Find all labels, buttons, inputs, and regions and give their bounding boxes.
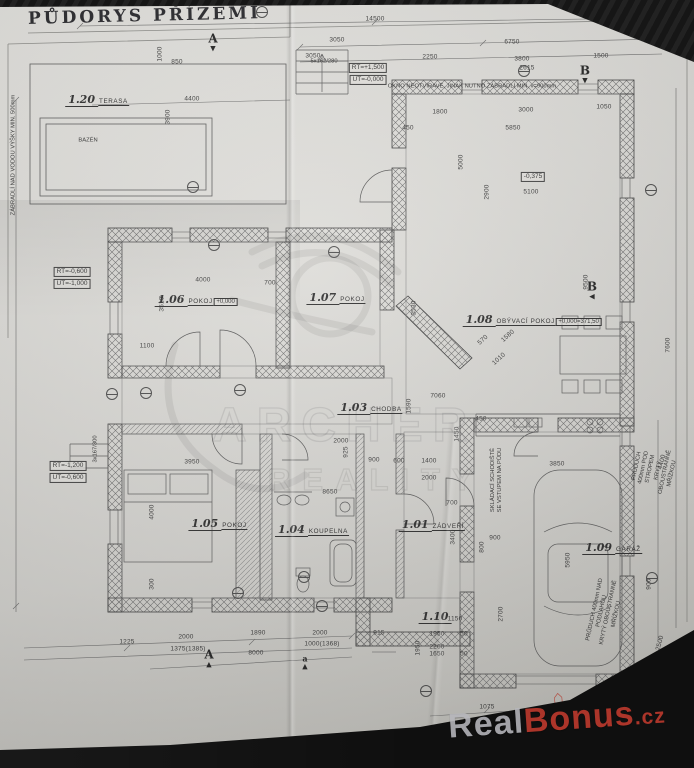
reference-bubble-icon bbox=[208, 239, 220, 251]
note-label: RT=-1,200 bbox=[50, 461, 87, 471]
room-name: POKOJ bbox=[187, 298, 213, 306]
note-label: PRŮDUCH 400mm POD STROPEM KRYTÝ OBOUSTRA… bbox=[629, 444, 681, 497]
dim-label: 3050 bbox=[329, 37, 344, 44]
room-label: 1.07POKOJ bbox=[306, 288, 365, 306]
room-label: 1.20TERASA bbox=[65, 90, 129, 108]
note-label: -0,375 bbox=[521, 172, 545, 182]
room-label: 1.06POKOJ+0,000 bbox=[155, 290, 238, 308]
section-arrow-icon: ▼ bbox=[580, 77, 590, 84]
room-label: 1.08OBÝVACÍ POKOJ+0,000=371,50 bbox=[463, 310, 602, 328]
room-number: 1.01 bbox=[399, 519, 432, 532]
room-name: TERASA bbox=[98, 98, 129, 106]
dim-label: 7600 bbox=[665, 337, 672, 352]
note-label: UT=-0,000 bbox=[350, 75, 387, 85]
dim-label: 4400 bbox=[184, 96, 199, 103]
dim-label: 6750 bbox=[504, 39, 519, 46]
dim-label: 5000 bbox=[458, 154, 465, 169]
note-label: UT=-1,000 bbox=[54, 279, 91, 289]
dim-label: 600 bbox=[393, 458, 404, 465]
room-number: 1.07 bbox=[306, 292, 339, 305]
reference-bubble-icon bbox=[518, 65, 530, 77]
room-label: 1.01ZÁDVEŘÍ bbox=[399, 515, 465, 533]
dim-label: 1100 bbox=[140, 343, 155, 350]
note-label: 3x167/300 bbox=[92, 435, 99, 462]
reference-bubble-icon bbox=[234, 384, 246, 396]
dim-label: 900 bbox=[368, 457, 379, 464]
section-arrow-icon: ◀ bbox=[587, 293, 597, 300]
room-number: 1.06 bbox=[155, 294, 188, 307]
room-label: 1.04KOUPELNA bbox=[275, 520, 349, 538]
dim-label: 14500 bbox=[365, 16, 384, 23]
reference-bubble-icon bbox=[187, 181, 199, 193]
dim-label: 2000 bbox=[421, 475, 436, 482]
reference-bubble-icon bbox=[645, 184, 657, 196]
dim-label: 1010 bbox=[491, 351, 507, 366]
dim-label: 5950 bbox=[565, 552, 572, 567]
dim-label: 1450 bbox=[454, 426, 461, 441]
dim-label: 800 bbox=[479, 541, 486, 552]
brand-bonus-text: Bonus bbox=[523, 695, 636, 741]
room-label: 1.10 bbox=[419, 607, 452, 625]
dim-label: 1950 bbox=[429, 631, 444, 638]
reference-bubble-icon bbox=[298, 571, 310, 583]
dim-label: 3950 bbox=[184, 459, 199, 466]
dim-label: 8000 bbox=[248, 650, 263, 657]
dim-label: 50 bbox=[460, 631, 468, 638]
note-label: 5x162/280 bbox=[310, 58, 337, 65]
section-marker: A▲ bbox=[204, 649, 213, 668]
dim-label: 450 bbox=[402, 125, 413, 132]
room-number: 1.10 bbox=[419, 611, 452, 624]
reference-bubble-icon bbox=[420, 685, 432, 697]
brand-real-text: Real bbox=[447, 702, 525, 745]
dim-label: 700 bbox=[446, 500, 457, 507]
room-number: 1.08 bbox=[463, 314, 496, 327]
dim-label: 3900 bbox=[165, 109, 172, 124]
note-label: ZÁBRADLÍ NAD VODOU VÝŠKY MIN. 500mm bbox=[10, 95, 17, 216]
dim-label: 2000 bbox=[178, 634, 193, 641]
dim-label: 3000 bbox=[518, 107, 533, 114]
dim-label: 1950 bbox=[415, 640, 422, 655]
section-marker: B▼ bbox=[580, 65, 590, 84]
dim-label: 3530 bbox=[411, 300, 418, 315]
dim-label: 2260 bbox=[429, 644, 444, 651]
dim-label: 3800 bbox=[514, 56, 529, 63]
room-label: 1.05POKOJ bbox=[188, 514, 247, 532]
dim-label: 1800 bbox=[432, 109, 447, 116]
dim-label: 925 bbox=[343, 446, 350, 457]
section-arrow-icon: ▼ bbox=[208, 45, 217, 52]
room-name: KOUPELNA bbox=[308, 528, 349, 536]
room-level-value: +0,000=371,50 bbox=[556, 318, 601, 326]
dim-label: 1050 bbox=[596, 104, 611, 111]
reference-bubble-icon bbox=[232, 587, 244, 599]
dim-label: 850 bbox=[171, 59, 182, 66]
dim-label: 7060 bbox=[430, 393, 445, 400]
dim-label: 1000(1368) bbox=[304, 641, 339, 648]
dim-label: 1375(1385) bbox=[170, 646, 205, 653]
dim-label: 2900 bbox=[484, 184, 491, 199]
section-arrow-icon: ▲ bbox=[302, 663, 307, 670]
dim-label: 2500 bbox=[655, 635, 666, 652]
room-number: 1.04 bbox=[275, 524, 308, 537]
note-label: RT=-0,600 bbox=[54, 267, 91, 277]
room-name: ZÁDVEŘÍ bbox=[432, 523, 466, 531]
dim-label: 4000 bbox=[149, 504, 156, 519]
reference-bubble-icon bbox=[328, 246, 340, 258]
room-name: CHODBA bbox=[370, 406, 403, 414]
room-label: 1.09GARÁŽ bbox=[582, 538, 642, 556]
dim-label: 2250 bbox=[422, 54, 437, 61]
reference-bubble-icon bbox=[140, 387, 152, 399]
section-marker: A▼ bbox=[208, 33, 217, 52]
dim-label: 450 bbox=[475, 416, 486, 423]
room-name: GARÁŽ bbox=[615, 546, 642, 554]
section-marker: B◀ bbox=[587, 281, 597, 300]
dim-label: 1225 bbox=[119, 639, 134, 646]
annotation-layer: 1450030506750305022503800150026154400850… bbox=[0, 0, 694, 768]
dim-label: 570 bbox=[476, 334, 489, 347]
house-icon: ⌂ bbox=[665, 700, 674, 714]
note-label: UT=-0,600 bbox=[50, 473, 87, 483]
dim-label: 1000 bbox=[157, 46, 164, 61]
section-arrow-icon: ▲ bbox=[204, 661, 213, 668]
room-name: POKOJ bbox=[221, 522, 247, 530]
dim-label: 915 bbox=[373, 630, 384, 637]
dim-label: 2700 bbox=[498, 606, 505, 621]
room-number: 1.09 bbox=[582, 542, 615, 555]
room-name: OBÝVACÍ POKOJ bbox=[496, 318, 556, 326]
room-label: 1.03CHODBA bbox=[337, 398, 402, 416]
dim-label: 1580 bbox=[500, 328, 516, 343]
dim-label: 1500 bbox=[593, 53, 608, 60]
dim-label: 700 bbox=[264, 280, 275, 287]
dim-label: 900 bbox=[489, 535, 500, 542]
note-label: OKNO NEOTVÍRAVÉ, JINAK NUTNO ZÁBRADLÍ MI… bbox=[388, 83, 557, 90]
reference-bubble-icon bbox=[106, 388, 118, 400]
dim-label: 5100 bbox=[523, 189, 538, 196]
note-label: PRŮDUCH 400mm NAD PODLAHOU KRYTÝ OBOUSTR… bbox=[583, 566, 630, 658]
note-label: BAZÉN bbox=[78, 137, 97, 144]
dim-label: 1650 bbox=[429, 651, 444, 658]
dim-label: 3850 bbox=[549, 461, 564, 468]
note-label: RT=+1,500 bbox=[349, 63, 387, 73]
dim-label: 4000 bbox=[195, 277, 210, 284]
room-level-value: +0,000 bbox=[214, 298, 238, 306]
reference-bubble-icon bbox=[256, 6, 268, 18]
room-number: 1.20 bbox=[65, 94, 98, 107]
dim-label: 1890 bbox=[250, 630, 265, 637]
dim-label: 8650 bbox=[322, 489, 337, 496]
dim-label: 5850 bbox=[505, 125, 520, 132]
dim-label: 1400 bbox=[421, 458, 436, 465]
note-label: SKLÁDACÍ SCHODIŠTĚ SE VSTUPEM NA PŮDU bbox=[490, 448, 504, 513]
reference-bubble-icon bbox=[316, 600, 328, 612]
dim-label: 2000 bbox=[312, 630, 327, 637]
dim-label: 2000 bbox=[333, 438, 348, 445]
room-number: 1.05 bbox=[188, 518, 221, 531]
scanned-floorplan-photo: PŮDORYS PŘÍZEMÍ bbox=[0, 0, 694, 768]
dim-label: 50 bbox=[460, 651, 468, 658]
dim-label: 1590 bbox=[406, 398, 413, 413]
room-name: POKOJ bbox=[339, 296, 365, 304]
reference-bubble-icon bbox=[646, 572, 658, 584]
dim-label: 300 bbox=[149, 578, 156, 589]
section-marker: a▲ bbox=[302, 655, 307, 670]
room-number: 1.03 bbox=[337, 402, 370, 415]
brand-tld-text: .cz bbox=[634, 704, 667, 729]
dim-label: 16500 bbox=[355, 742, 374, 749]
